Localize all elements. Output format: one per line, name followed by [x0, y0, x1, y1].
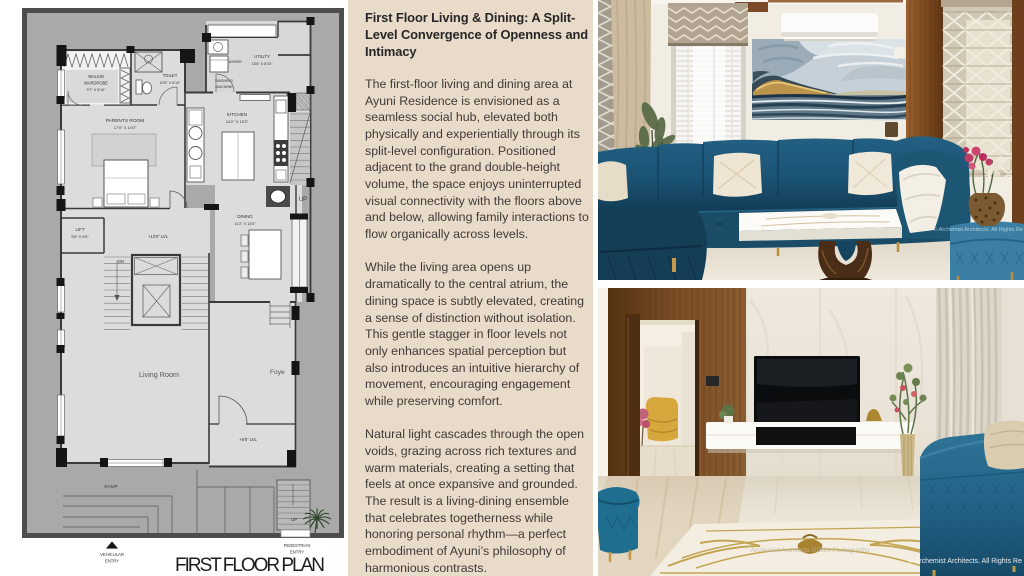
svg-text:Foye: Foye: [270, 369, 285, 376]
svg-text:5'6" X 6'5": 5'6" X 6'5": [71, 235, 89, 239]
svg-text:14'2" X 15'2": 14'2" X 15'2": [226, 119, 249, 124]
svg-text:PEDESTRIAN: PEDESTRIAN: [284, 543, 311, 548]
svg-text:UP: UP: [299, 197, 307, 203]
svg-text:13'6" X 8'10": 13'6" X 8'10": [252, 62, 274, 66]
svg-text:UP: UP: [291, 517, 297, 522]
svg-text:PARENTS ROOM: PARENTS ROOM: [106, 118, 145, 124]
svg-text:TOILET: TOILET: [163, 73, 178, 78]
svg-text:KITCHEN: KITCHEN: [227, 112, 247, 117]
svg-text:DN: DN: [118, 259, 124, 264]
svg-text:9'7" X 6'10": 9'7" X 6'10": [87, 88, 106, 92]
svg-text:© Archemist Architects. All Ri: © Archemist Architects. All Rights Re: [933, 226, 1023, 233]
svg-text:Living Room: Living Room: [139, 370, 179, 379]
svg-text:VEHICULAR: VEHICULAR: [100, 552, 124, 557]
svg-text:10'5" X 6'10": 10'5" X 6'10": [160, 81, 182, 85]
svg-text:17'0" X 14'0": 17'0" X 14'0": [114, 125, 137, 130]
svg-text:11'2" X 13'0": 11'2" X 13'0": [234, 222, 256, 226]
svg-text:FIRST FLOOR PLAN: FIRST FLOOR PLAN: [175, 555, 325, 576]
svg-text:+13'0" LVL: +13'0" LVL: [148, 234, 169, 239]
svg-text:UTILITY: UTILITY: [254, 54, 270, 59]
svg-text:RAMP: RAMP: [104, 484, 117, 489]
svg-text:Archemist Architects ©2021 Pho: Archemist Architects ©2021 Photographs: [751, 546, 870, 554]
svg-text:© Archemist Architects. All Ri: © Archemist Architects. All Rights Re: [908, 557, 1022, 565]
svg-text:WALKIN: WALKIN: [88, 74, 104, 79]
svg-text:+6'6" LVL: +6'6" LVL: [239, 437, 257, 442]
svg-text:LIFT: LIFT: [75, 227, 84, 232]
svg-text:DINING: DINING: [237, 214, 253, 219]
svg-text:ENTRY: ENTRY: [105, 559, 119, 564]
svg-text:WARDROBE: WARDROBE: [84, 81, 108, 86]
svg-text:MACHINE: MACHINE: [215, 85, 233, 89]
svg-text:ENTRY: ENTRY: [290, 550, 304, 555]
